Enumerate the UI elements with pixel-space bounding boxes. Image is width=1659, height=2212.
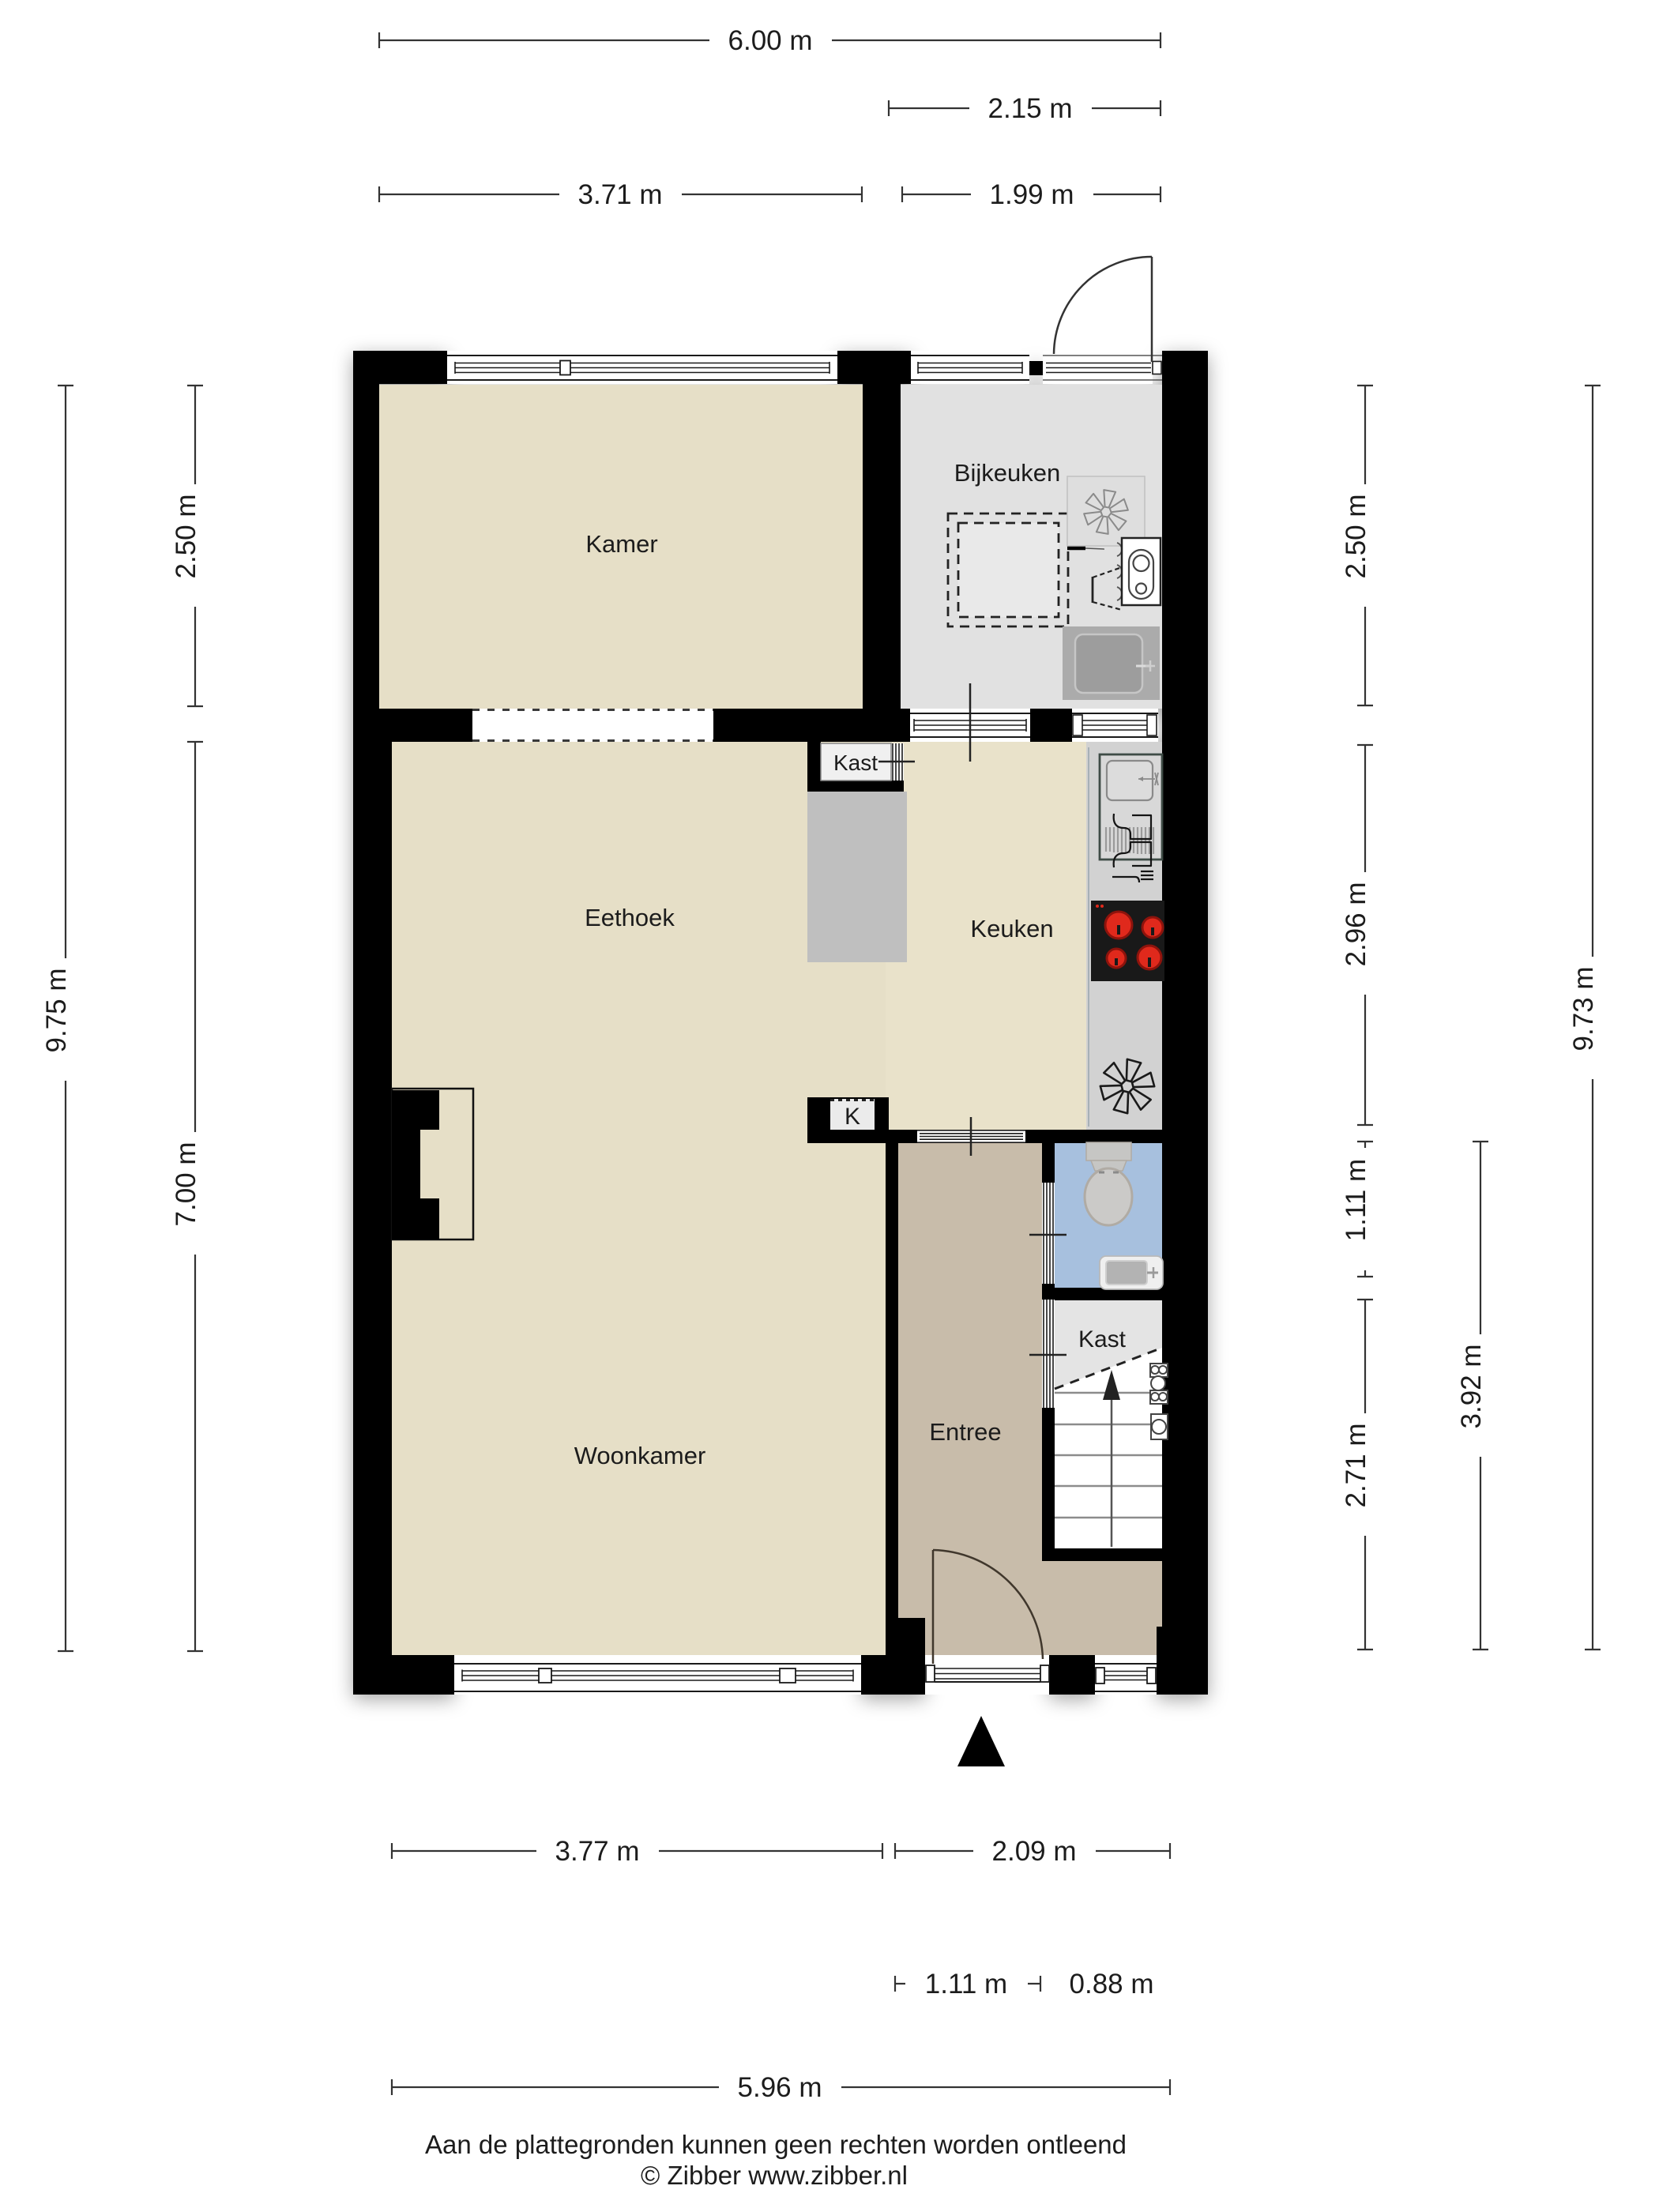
svg-text:Bijkeuken: Bijkeuken — [954, 459, 1060, 487]
svg-text:3.71 m: 3.71 m — [578, 179, 663, 210]
svg-text:Kast: Kast — [833, 750, 878, 775]
svg-text:Aan de plattegronden kunnen ge: Aan de plattegronden kunnen geen rechten… — [425, 2130, 1127, 2159]
svg-text:5.96 m: 5.96 m — [738, 2072, 822, 2103]
svg-text:Kamer: Kamer — [585, 530, 657, 558]
svg-text:2.09 m: 2.09 m — [992, 1836, 1077, 1867]
svg-text:Kast: Kast — [1078, 1326, 1127, 1352]
svg-text:Keuken: Keuken — [970, 915, 1053, 942]
svg-text:7.00 m: 7.00 m — [171, 1142, 201, 1227]
svg-text:9.73 m: 9.73 m — [1568, 967, 1599, 1051]
svg-text:1.11 m: 1.11 m — [925, 1969, 1007, 1999]
svg-text:6.00 m: 6.00 m — [728, 25, 813, 56]
svg-text:Woonkamer: Woonkamer — [574, 1442, 706, 1469]
svg-text:2.71 m: 2.71 m — [1341, 1424, 1371, 1508]
svg-text:0.88 m: 0.88 m — [1070, 1969, 1154, 1999]
svg-text:1.99 m: 1.99 m — [990, 179, 1074, 210]
svg-text:3.77 m: 3.77 m — [555, 1836, 640, 1867]
svg-text:Entree: Entree — [929, 1418, 1001, 1446]
svg-text:2.50 m: 2.50 m — [1341, 495, 1371, 579]
svg-text:K: K — [845, 1104, 860, 1130]
svg-text:9.75 m: 9.75 m — [41, 969, 72, 1053]
svg-text:© Zibber www.zibber.nl: © Zibber www.zibber.nl — [641, 2161, 908, 2190]
svg-text:Eethoek: Eethoek — [585, 904, 675, 931]
svg-text:2.96 m: 2.96 m — [1341, 882, 1371, 967]
svg-text:1.11 m: 1.11 m — [1341, 1159, 1371, 1241]
svg-text:2.50 m: 2.50 m — [171, 495, 201, 579]
svg-text:3.92 m: 3.92 m — [1456, 1345, 1487, 1429]
svg-text:2.15 m: 2.15 m — [988, 93, 1073, 124]
